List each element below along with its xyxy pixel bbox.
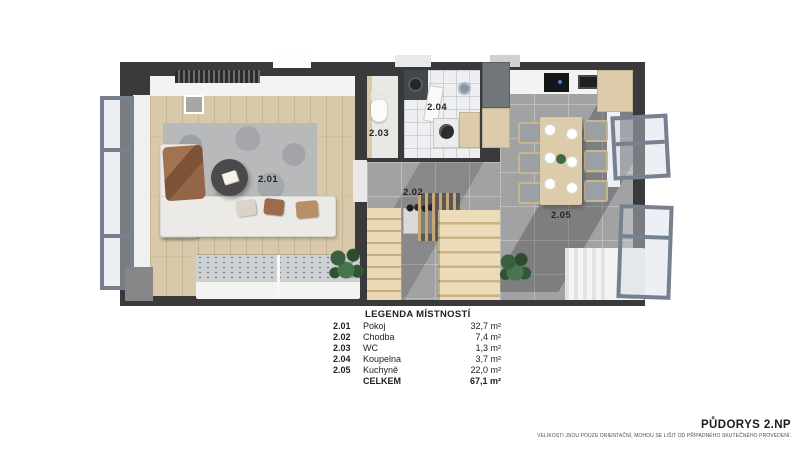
stairs-left-flight (367, 208, 401, 300)
cooktop-knob (558, 80, 562, 84)
plate (544, 152, 556, 164)
plate (566, 182, 578, 194)
balcony-slab (125, 267, 153, 301)
plate (566, 128, 578, 140)
plate (544, 178, 556, 190)
legend-row: 2.02 Chodba 7,4 m² (333, 332, 501, 343)
radiator (175, 70, 260, 83)
wall-art (184, 95, 204, 114)
legend-total-code (333, 376, 363, 387)
fridge (482, 62, 510, 108)
window-bar (104, 234, 130, 238)
plant (498, 250, 532, 284)
window-bar (616, 140, 665, 147)
legend-row: 2.04 Koupelna 3,7 m² (333, 354, 501, 365)
legend: LEGENDA MÍSTNOSTÍ 2.01 Pokoj 32,7 m² 2.0… (333, 308, 501, 387)
plan-title: PŮDORYS 2.NP (537, 419, 791, 431)
legend-total-area: 67,1 m² (451, 376, 501, 387)
legend-room-name: Pokoj (363, 321, 451, 332)
legend-room-name: Kuchyně (363, 365, 451, 376)
legend-row: 2.05 Kuchyně 22,0 m² (333, 365, 501, 376)
wall-top-block (273, 54, 311, 68)
pillow (235, 199, 257, 218)
window-left (100, 96, 134, 290)
legend-row: 2.03 WC 1,3 m² (333, 343, 501, 354)
plate (566, 156, 578, 168)
room-label-2-02: 2.02 (395, 187, 431, 198)
legend-title: LEGENDA MÍSTNOSTÍ (365, 308, 501, 321)
legend-room-area: 32,7 m² (451, 321, 501, 332)
legend-room-code: 2.01 (333, 321, 363, 332)
toilet (371, 100, 387, 122)
window-right-top (610, 114, 670, 181)
dining-chair (584, 120, 608, 142)
floor-plan-page: 2.01 2.03 2.04 2.02 (0, 0, 800, 450)
legend-room-area: 3,7 m² (451, 354, 501, 365)
legend-room-name: Chodba (363, 332, 451, 343)
dining-chair (518, 122, 542, 144)
legend-room-area: 1,3 m² (451, 343, 501, 354)
bench-slats (565, 248, 610, 300)
legend-room-code: 2.04 (333, 354, 363, 365)
kitchen-cabinet (482, 108, 510, 148)
room-label-2-01: 2.01 (250, 174, 286, 185)
floor-plan: 2.01 2.03 2.04 2.02 (120, 62, 645, 306)
bath-cabinet (459, 112, 480, 148)
dining-chair (518, 152, 542, 174)
washing-machine-drum (439, 124, 454, 139)
window-right-bottom (616, 204, 673, 300)
legend-total-label: CELKEM (363, 376, 451, 387)
kitchen-sink (578, 75, 599, 89)
toilet-tank (371, 92, 387, 100)
legend-total-row: CELKEM 67,1 m² (333, 376, 501, 387)
blanket (162, 145, 206, 202)
window-bar (622, 234, 668, 240)
legend-room-code: 2.02 (333, 332, 363, 343)
bath-sink (408, 77, 423, 92)
legend-room-code: 2.05 (333, 365, 363, 376)
legend-room-name: WC (363, 343, 451, 354)
doorway (353, 160, 367, 202)
disclaimer: VELIKOSTI JSOU POUZE ORIENTAČNÍ, MOHOU S… (537, 433, 791, 439)
bed-split (277, 255, 280, 299)
pillow (295, 200, 318, 219)
dining-chair (584, 180, 608, 202)
dining-chair (584, 150, 608, 172)
room-label-2-03: 2.03 (361, 128, 397, 139)
shower-head (458, 82, 471, 95)
footer: PŮDORYS 2.NP VELIKOSTI JSOU POUZE ORIENT… (537, 419, 791, 439)
plate (544, 124, 556, 136)
exterior-wall-strip (133, 95, 150, 290)
window-bar (104, 148, 130, 152)
legend-room-code: 2.03 (333, 343, 363, 354)
legend-room-name: Koupelna (363, 354, 451, 365)
pillow (263, 198, 285, 216)
legend-room-area: 7,4 m² (451, 332, 501, 343)
plant (326, 244, 366, 284)
dining-chair (518, 182, 542, 204)
corner-cabinet (597, 70, 633, 112)
legend-row: 2.01 Pokoj 32,7 m² (333, 321, 501, 332)
room-label-2-04: 2.04 (419, 102, 455, 113)
stairs-right-flight (438, 210, 500, 300)
table-plant (556, 154, 566, 164)
cooktop (544, 73, 569, 92)
wall-top-block (395, 55, 431, 67)
legend-room-area: 22,0 m² (451, 365, 501, 376)
room-label-2-05: 2.05 (543, 210, 579, 221)
